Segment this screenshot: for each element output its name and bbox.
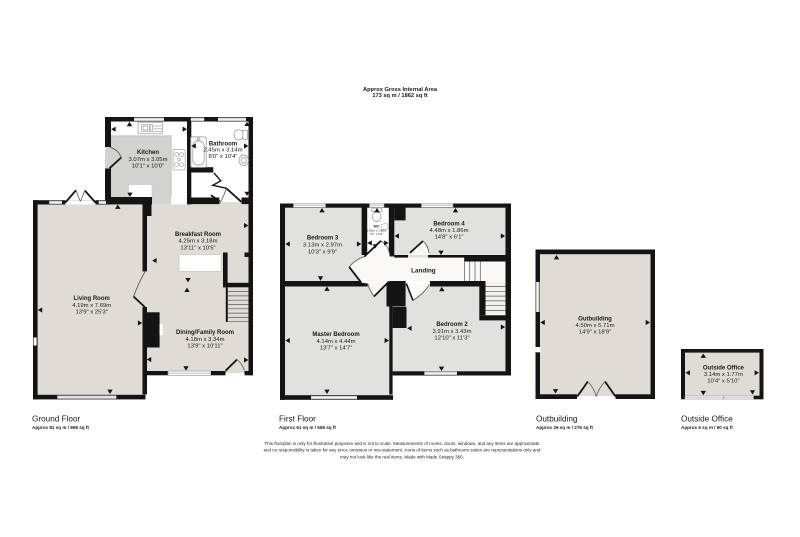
svg-text:3.07m x 3.05m: 3.07m x 3.05m [129,157,168,163]
svg-text:Approx 81 sq m / 868 sq ft: Approx 81 sq m / 868 sq ft [32,425,89,430]
svg-text:Approx 6 sq m / 60 sq ft: Approx 6 sq m / 60 sq ft [681,425,733,430]
svg-text:13'7" x 14'7": 13'7" x 14'7" [320,346,352,352]
svg-text:Living Room: Living Room [74,296,110,302]
svg-text:173 sq m / 1862 sq ft: 173 sq m / 1862 sq ft [372,93,427,99]
svg-text:This floorplan is only for ill: This floorplan is only for illustrative … [265,441,540,446]
svg-text:Bedroom 4: Bedroom 4 [433,221,465,227]
svg-text:Ground Floor: Ground Floor [32,415,81,424]
svg-text:Outbuilding: Outbuilding [536,415,578,424]
svg-text:10'1" x 10'0": 10'1" x 10'0" [132,164,164,170]
svg-text:Landing: Landing [411,268,436,275]
svg-text:4.19m x 7.69m: 4.19m x 7.69m [72,303,111,309]
svg-text:3.14m x 1.77m: 3.14m x 1.77m [704,372,743,378]
svg-text:13'9" x 10'11": 13'9" x 10'11" [187,344,222,350]
svg-text:Approx 61 sq m / 658 sq ft: Approx 61 sq m / 658 sq ft [279,425,336,430]
svg-text:Outside Office: Outside Office [681,415,733,424]
svg-text:Kitchen: Kitchen [137,150,159,156]
svg-text:14'8" x 6'1": 14'8" x 6'1" [434,235,463,241]
svg-text:13'9" x 25'3": 13'9" x 25'3" [76,310,108,316]
svg-text:10'4" x 5'10": 10'4" x 5'10" [707,379,739,385]
svg-text:10'3" x 9'9": 10'3" x 9'9" [308,249,337,255]
svg-text:4.18m x 3.34m: 4.18m x 3.34m [186,337,225,343]
svg-text:Bedroom 3: Bedroom 3 [307,236,339,242]
svg-text:4.48m x 1.86m: 4.48m x 1.86m [430,228,469,234]
svg-text:and no responsibility is taken: and no responsibility is taken for any e… [264,448,541,453]
svg-text:4.14m x 4.44m: 4.14m x 4.44m [317,339,356,345]
svg-text:12'10" x 11'3": 12'10" x 11'3" [434,336,469,342]
svg-text:Bathroom: Bathroom [209,141,237,147]
svg-text:may not look like the real ite: may not look like the real items. Made w… [340,454,464,459]
svg-text:Dining/Family Room: Dining/Family Room [176,330,234,336]
svg-text:8'0" x 10'4": 8'0" x 10'4" [208,154,237,160]
svg-text:Bedroom 2: Bedroom 2 [436,322,468,328]
svg-text:3.13m x 2.97m: 3.13m x 2.97m [303,243,342,249]
svg-text:4.50m x 5.71m: 4.50m x 5.71m [576,323,615,329]
svg-text:Outbuilding: Outbuilding [578,317,612,323]
svg-text:2.45m x 3.14m: 2.45m x 3.14m [204,148,243,154]
svg-text:3.91m x 3.43m: 3.91m x 3.43m [433,329,472,335]
svg-text:4.25m x 3.18m: 4.25m x 3.18m [179,239,218,245]
svg-text:Breakfast Room: Breakfast Room [175,232,221,238]
svg-text:First Floor: First Floor [279,415,316,424]
svg-text:Approx 26 sq m / 276 sq ft: Approx 26 sq m / 276 sq ft [536,425,593,430]
svg-text:13'11" x 10'5": 13'11" x 10'5" [180,245,215,251]
svg-text:14'9" x 18'9": 14'9" x 18'9" [579,329,611,335]
svg-text:3'1" x 6'2": 3'1" x 6'2" [370,232,383,236]
svg-text:Outside Office: Outside Office [703,366,745,372]
svg-text:Master Bedroom: Master Bedroom [312,332,359,338]
